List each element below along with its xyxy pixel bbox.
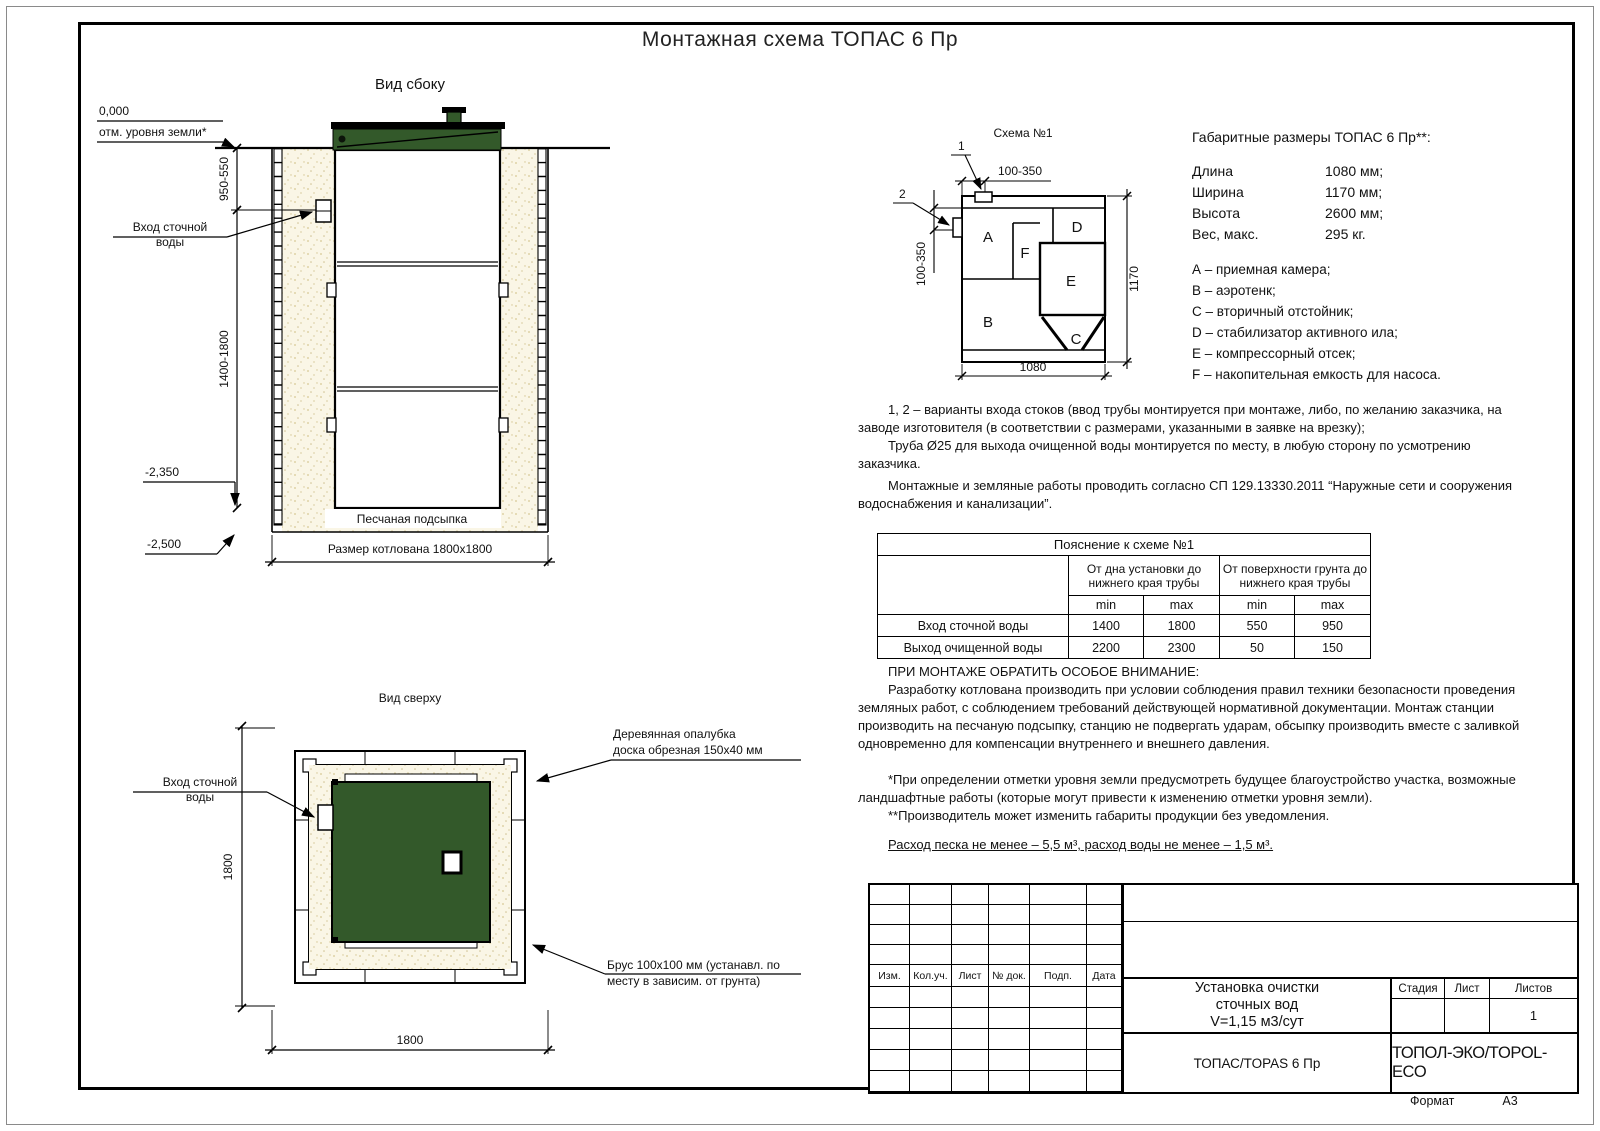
doc-designation-cell xyxy=(1124,885,1577,922)
svg-text:-2,500: -2,500 xyxy=(147,537,181,551)
svg-text:Вход сточной: Вход сточной xyxy=(133,220,208,234)
scheme-title: Схема №1 xyxy=(993,126,1052,140)
format-note: ФорматА3 xyxy=(1410,1094,1518,1108)
svg-text:Брус 100х100 мм (устанавл. по: Брус 100х100 мм (устанавл. по xyxy=(607,958,780,972)
top-tank xyxy=(332,774,490,948)
legend-item: А – приемная камера; xyxy=(1192,259,1537,280)
svg-text:Песчаная подсыпка: Песчаная подсыпка xyxy=(357,512,468,526)
tank-body xyxy=(327,150,508,508)
side-view-drawing: 950-550 1400-1800 0,000 отм. уровня земл… xyxy=(85,95,630,580)
spec-row: Ширина1170 мм; xyxy=(1192,182,1537,203)
svg-text:C: C xyxy=(1071,331,1082,348)
scheme-marker-2: 2 xyxy=(893,187,949,225)
rev-header: Лист xyxy=(952,965,989,987)
page-title: Монтажная схема ТОПАС 6 Пр xyxy=(450,28,1150,52)
scheme-dim-left: 100-350 xyxy=(914,190,962,286)
svg-text:месту в зависим. от грунта): месту в зависим. от грунта) xyxy=(607,974,760,988)
top-dim-horizontal: 1800 xyxy=(265,1010,555,1054)
svg-text:1800: 1800 xyxy=(397,1033,424,1047)
model-name: ТОПАС/TOPAS 6 Пр xyxy=(1124,1034,1392,1092)
table-corner-cell xyxy=(878,556,1069,615)
inlet-pipe xyxy=(316,200,331,222)
table-group-2: От поверхности грунта до нижнего края тр… xyxy=(1220,556,1371,596)
rev-header: № док. xyxy=(989,965,1030,987)
explanation-table-wrap: Пояснение к схеме №1 От дна установки до… xyxy=(877,533,1371,659)
company-name: ТОПОЛ-ЭКО/TOPOL-ECO xyxy=(1392,1034,1577,1092)
table-row: Выход очищенной воды 2200 2300 50 150 xyxy=(878,637,1371,659)
revision-grid: Изм. Кол.уч. Лист № док. Подп. Дата xyxy=(870,885,1122,1092)
svg-text:2: 2 xyxy=(899,187,906,201)
legend-item: D – стабилизатор активного ила; xyxy=(1192,322,1537,343)
spec-row: Длина1080 мм; xyxy=(1192,161,1537,182)
footnotes: *При определении отметки уровня земли пр… xyxy=(858,771,1534,825)
attention-heading: ПРИ МОНТАЖЕ ОБРАТИТЬ ОСОБОЕ ВНИМАНИЕ: xyxy=(858,663,1534,681)
svg-text:1: 1 xyxy=(958,139,965,153)
scheme-compartments: A B C D E F xyxy=(983,219,1083,348)
drawing-sheet: Монтажная схема ТОПАС 6 Пр Вид сбоку xyxy=(0,0,1600,1131)
doc-designation-cell xyxy=(1124,922,1577,979)
scheme-dim-right: 1170 xyxy=(1107,189,1141,369)
scheme-drawing: Схема №1 A B C D E F 1 xyxy=(855,118,1195,408)
legend-item: F – накопительная емкость для насоса. xyxy=(1192,364,1537,385)
mark-2350: -2,350 xyxy=(143,465,235,505)
explanation-table: Пояснение к схеме №1 От дна установки до… xyxy=(877,533,1371,659)
svg-text:отм. уровня земли*: отм. уровня земли* xyxy=(99,125,207,139)
rev-header: Дата xyxy=(1087,965,1122,987)
zero-mark: 0,000 отм. уровня земли* xyxy=(97,104,234,147)
svg-text:0,000: 0,000 xyxy=(99,104,129,118)
col-max: max xyxy=(1144,596,1220,615)
spec-row: Вес, макс.295 кг. xyxy=(1192,224,1537,245)
table-group-1: От дна установки до нижнего края трубы xyxy=(1069,556,1220,596)
legend-item: Е – компрессорный отсек; xyxy=(1192,343,1537,364)
title-block-right: Установка очистки сточных вод V=1,15 м3/… xyxy=(1122,885,1577,1092)
svg-text:Размер котлована 1800х1800: Размер котлована 1800х1800 xyxy=(328,542,493,556)
format-label: Формат xyxy=(1410,1094,1454,1108)
tank-lid xyxy=(331,107,505,150)
side-view-title: Вид сбоку xyxy=(330,76,490,93)
format-value: А3 xyxy=(1502,1094,1517,1108)
scheme-dim-top: 100-350 xyxy=(955,164,1051,196)
sheets-label: Листов xyxy=(1490,979,1577,999)
dim-950-550: 950-550 xyxy=(217,157,231,201)
title-block: Изм. Кол.уч. Лист № док. Подп. Дата Уста… xyxy=(868,883,1579,1094)
sheets-value: 1 xyxy=(1490,999,1577,1032)
top-view-drawing: Вид сверху xyxy=(85,680,815,1080)
footnote: **Производитель может изменить габариты … xyxy=(858,807,1534,825)
col-min: min xyxy=(1220,596,1295,615)
spec-row: Высота2600 мм; xyxy=(1192,203,1537,224)
svg-text:A: A xyxy=(983,229,993,246)
note-text: Монтажные и земляные работы проводить со… xyxy=(858,477,1534,513)
formwork-label: Деревянная опалубка доска обрезная 150х4… xyxy=(537,727,801,781)
col-min: min xyxy=(1069,596,1144,615)
specs-heading: Габаритные размеры ТОПАС 6 Пр**: xyxy=(1192,129,1537,145)
notes-works: Монтажные и земляные работы проводить со… xyxy=(858,477,1534,513)
top-dim-vertical: 1800 xyxy=(221,722,275,1012)
footnote: *При определении отметки уровня земли пр… xyxy=(858,771,1534,807)
doc-title: Установка очистки сточных вод V=1,15 м3/… xyxy=(1124,979,1392,1032)
stage-table: Стадия Лист Листов 1 xyxy=(1392,979,1577,1032)
sheet-label: Лист xyxy=(1445,979,1490,999)
scheme-inlet-2 xyxy=(953,218,962,237)
top-inlet-pipe xyxy=(318,805,333,830)
sheet-value xyxy=(1445,999,1490,1032)
consumption-note: Расход песка не менее – 5,5 м³, расход в… xyxy=(858,837,1273,852)
rev-header: Изм. xyxy=(870,965,910,987)
col-max: max xyxy=(1295,596,1371,615)
legend-item: С – вторичный отстойник; xyxy=(1192,301,1537,322)
note-text: 1, 2 – варианты входа стоков (ввод трубы… xyxy=(858,401,1534,437)
notes-variants: 1, 2 – варианты входа стоков (ввод трубы… xyxy=(858,401,1534,473)
scheme-box xyxy=(962,196,1105,362)
sand-bed-label: Песчаная подсыпка xyxy=(325,509,501,528)
svg-text:доска обрезная 150х40 мм: доска обрезная 150х40 мм xyxy=(613,743,763,757)
svg-text:100-350: 100-350 xyxy=(914,242,928,286)
specs-block: Габаритные размеры ТОПАС 6 Пр**: Длина10… xyxy=(1192,129,1537,385)
attention-body: Разработку котлована производить при усл… xyxy=(858,681,1534,753)
legend-item: В – аэротенк; xyxy=(1192,280,1537,301)
stage-label: Стадия xyxy=(1392,979,1445,999)
mark-2500: -2,500 xyxy=(145,535,234,554)
svg-text:-2,350: -2,350 xyxy=(145,465,179,479)
attention-block: ПРИ МОНТАЖЕ ОБРАТИТЬ ОСОБОЕ ВНИМАНИЕ: Ра… xyxy=(858,663,1534,753)
svg-text:Вход сточной: Вход сточной xyxy=(163,775,238,789)
rev-header: Кол.уч. xyxy=(910,965,952,987)
svg-text:B: B xyxy=(983,314,993,331)
stage-value xyxy=(1392,999,1445,1032)
svg-text:1080: 1080 xyxy=(1020,360,1047,374)
compartment-legend: А – приемная камера; В – аэротенк; С – в… xyxy=(1192,259,1537,385)
beam-label: Брус 100х100 мм (устанавл. по месту в за… xyxy=(533,945,801,988)
table-row: Вход сточной воды 1400 1800 550 950 xyxy=(878,615,1371,637)
table-title: Пояснение к схеме №1 xyxy=(878,534,1371,556)
svg-text:Деревянная опалубка: Деревянная опалубка xyxy=(613,727,736,741)
svg-text:F: F xyxy=(1020,245,1029,262)
rev-header: Подп. xyxy=(1030,965,1087,987)
svg-text:1800: 1800 xyxy=(221,853,235,880)
svg-text:100-350: 100-350 xyxy=(998,164,1042,178)
scheme-inlet-1 xyxy=(975,192,992,202)
top-view-title: Вид сверху xyxy=(379,691,442,705)
svg-text:1170: 1170 xyxy=(1127,266,1141,292)
dim-1400-1800: 1400-1800 xyxy=(217,330,231,388)
svg-text:E: E xyxy=(1066,273,1076,290)
note-text: Труба Ø25 для выхода очищенной воды монт… xyxy=(858,437,1534,473)
svg-text:D: D xyxy=(1072,219,1083,236)
